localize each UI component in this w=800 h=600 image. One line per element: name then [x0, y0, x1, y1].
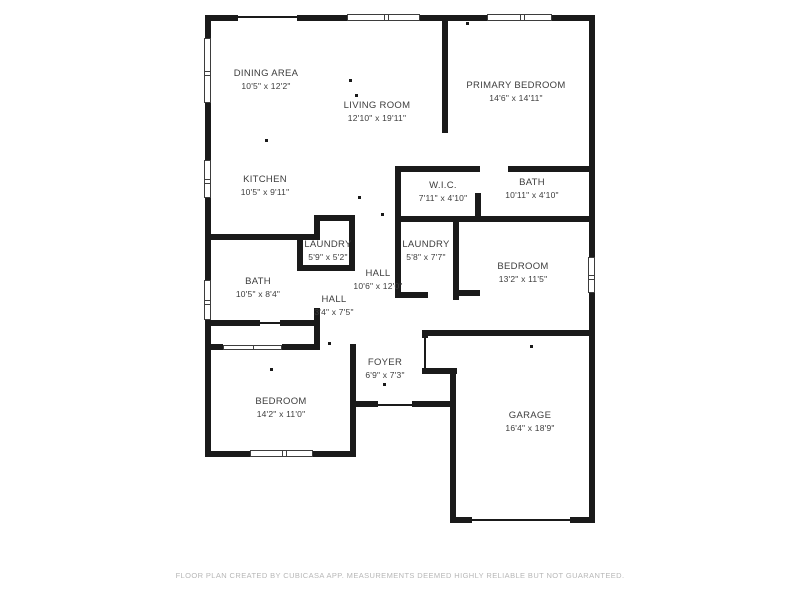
- room-dimensions: 10'5" x 9'11": [241, 187, 290, 198]
- marker-dot: [530, 345, 533, 348]
- room-name: BEDROOM: [255, 396, 306, 409]
- marker-dot: [328, 342, 331, 345]
- window: [347, 14, 420, 21]
- window: [204, 38, 211, 103]
- room-name: DINING AREA: [234, 68, 299, 81]
- window: [204, 280, 211, 320]
- room-name: PRIMARY BEDROOM: [466, 80, 565, 93]
- room-label-bath-2: BATH 10'5" x 8'4": [236, 276, 280, 300]
- room-dimensions: 14'2" x 11'0": [255, 409, 306, 420]
- marker-dot: [270, 368, 273, 371]
- wall: [589, 293, 595, 523]
- door-opening: [424, 338, 426, 368]
- room-label-primary-bath: BATH 10'11" x 4'10": [505, 177, 559, 201]
- room-name: BATH: [236, 276, 280, 289]
- wall-opening: [260, 322, 280, 324]
- room-label-foyer: FOYER 6'9" x 7'3": [365, 357, 404, 381]
- window: [487, 14, 552, 21]
- disclaimer-text: FLOOR PLAN CREATED BY CUBICASA APP. MEAS…: [0, 571, 800, 580]
- wall: [450, 517, 472, 523]
- wall: [459, 290, 480, 296]
- room-name: LAUNDRY: [304, 239, 351, 252]
- wall: [570, 517, 595, 523]
- room-label-laundry-2: LAUNDRY 5'8" x 7'7": [402, 239, 449, 263]
- room-label-hall-small: HALL 3'4" x 7'5": [314, 294, 353, 318]
- wall: [205, 103, 211, 160]
- wall-opening: [238, 16, 297, 18]
- room-label-hall-main: HALL 10'6" x 12'0": [353, 268, 402, 292]
- room-dimensions: 16'4" x 18'9": [505, 423, 554, 434]
- marker-dot: [381, 213, 384, 216]
- window: [250, 450, 313, 457]
- room-name: LIVING ROOM: [344, 100, 411, 113]
- marker-dot: [383, 383, 386, 386]
- wall: [395, 166, 401, 222]
- room-dimensions: 7'11" x 4'10": [419, 193, 468, 204]
- wall: [350, 401, 378, 407]
- room-label-bedroom-right: BEDROOM 13'2" x 11'5": [497, 261, 548, 285]
- room-dimensions: 10'11" x 4'10": [505, 190, 559, 201]
- wall: [205, 320, 211, 457]
- garage-door-opening: [472, 519, 570, 521]
- front-door-opening: [378, 404, 412, 406]
- wall: [442, 15, 448, 133]
- room-name: FOYER: [365, 357, 404, 370]
- wall: [453, 222, 459, 300]
- floor-plan: DINING AREA 10'5" x 12'2" LIVING ROOM 12…: [0, 0, 800, 600]
- wall: [395, 166, 480, 172]
- room-label-primary-bedroom: PRIMARY BEDROOM 14'6" x 14'11": [466, 80, 565, 104]
- room-label-bedroom-left: BEDROOM 14'2" x 11'0": [255, 396, 306, 420]
- room-dimensions: 5'9" x 5'2": [304, 252, 351, 263]
- wall: [205, 15, 211, 38]
- wall: [450, 368, 456, 523]
- wall: [297, 240, 303, 271]
- room-name: GARAGE: [505, 410, 554, 423]
- room-name: BEDROOM: [497, 261, 548, 274]
- wall: [205, 344, 223, 350]
- room-dimensions: 3'4" x 7'5": [314, 307, 353, 318]
- room-dimensions: 14'6" x 14'11": [466, 93, 565, 104]
- room-dimensions: 5'8" x 7'7": [402, 252, 449, 263]
- room-dimensions: 6'9" x 7'3": [365, 370, 404, 381]
- wall: [420, 15, 487, 21]
- room-label-kitchen: KITCHEN 10'5" x 9'11": [241, 174, 290, 198]
- window: [204, 160, 211, 198]
- wall: [205, 451, 250, 457]
- marker-dot: [355, 94, 358, 97]
- room-name: BATH: [505, 177, 559, 190]
- room-label-laundry-1: LAUNDRY 5'9" x 5'2": [304, 239, 351, 263]
- room-name: W.I.C.: [419, 180, 468, 193]
- marker-dot: [358, 196, 361, 199]
- wall: [589, 15, 595, 257]
- room-name: KITCHEN: [241, 174, 290, 187]
- room-dimensions: 10'6" x 12'0": [353, 281, 402, 292]
- wall: [297, 15, 347, 21]
- wall: [280, 320, 314, 326]
- wall: [395, 292, 428, 298]
- room-label-living-room: LIVING ROOM 12'10" x 19'11": [344, 100, 411, 124]
- wall: [422, 330, 589, 336]
- room-dimensions: 10'5" x 12'2": [234, 81, 299, 92]
- room-label-dining-area: DINING AREA 10'5" x 12'2": [234, 68, 299, 92]
- closet-door: [223, 345, 282, 350]
- room-label-garage: GARAGE 16'4" x 18'9": [505, 410, 554, 434]
- room-dimensions: 10'5" x 8'4": [236, 289, 280, 300]
- room-name: HALL: [353, 268, 402, 281]
- room-label-wic: W.I.C. 7'11" x 4'10": [419, 180, 468, 204]
- wall: [412, 401, 452, 407]
- wall: [205, 320, 260, 326]
- wall: [508, 166, 589, 172]
- wall: [297, 265, 355, 271]
- room-dimensions: 12'10" x 19'11": [344, 113, 411, 124]
- room-name: HALL: [314, 294, 353, 307]
- room-name: LAUNDRY: [402, 239, 449, 252]
- marker-dot: [466, 22, 469, 25]
- wall: [395, 216, 589, 222]
- marker-dot: [349, 79, 352, 82]
- room-dimensions: 13'2" x 11'5": [497, 274, 548, 285]
- window: [588, 257, 595, 293]
- marker-dot: [265, 139, 268, 142]
